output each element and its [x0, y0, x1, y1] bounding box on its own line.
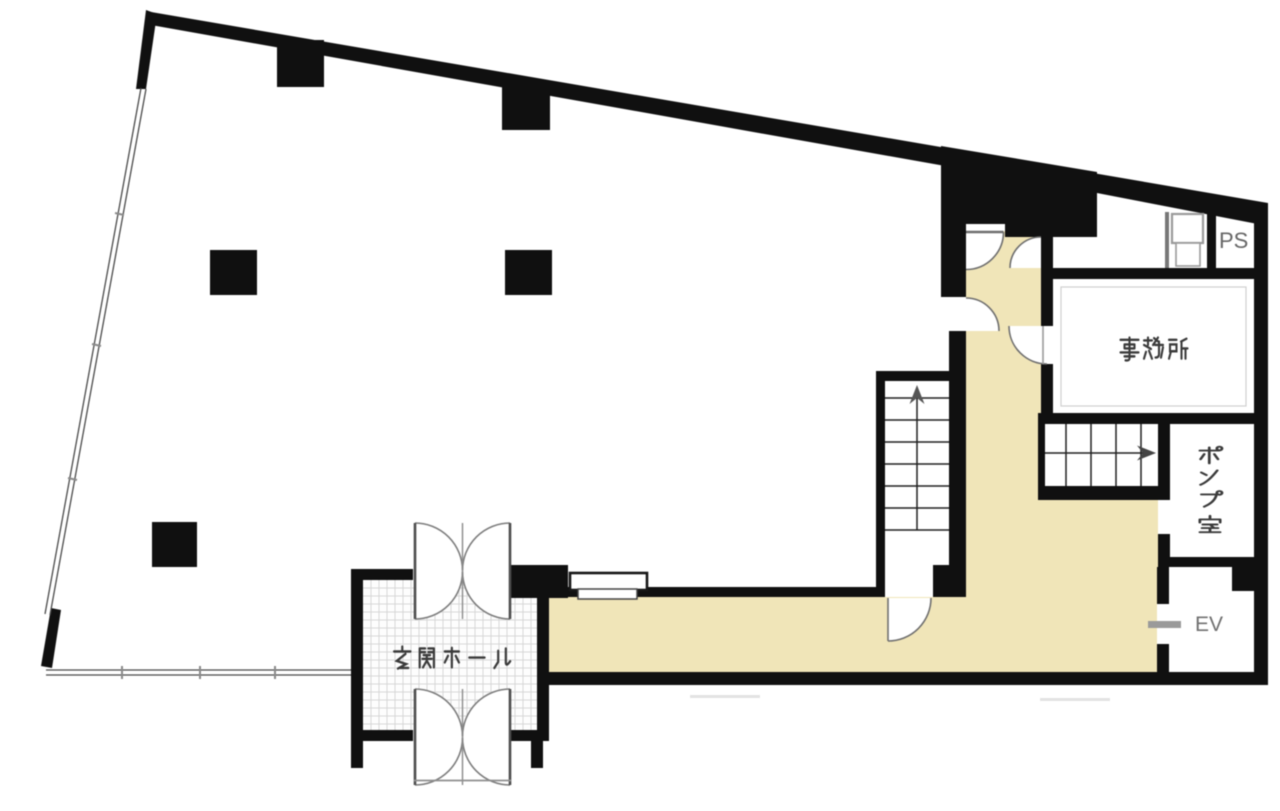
svg-text:EV: EV — [1195, 613, 1223, 636]
svg-text:PS: PS — [1219, 228, 1248, 253]
